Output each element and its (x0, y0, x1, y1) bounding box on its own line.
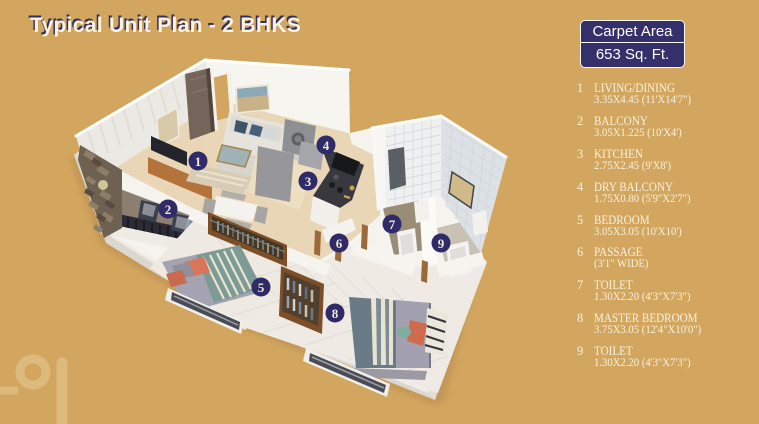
svg-text:5: 5 (258, 280, 265, 295)
svg-text:8: 8 (332, 306, 339, 321)
svg-text:3: 3 (305, 174, 312, 189)
svg-text:2: 2 (165, 202, 172, 217)
svg-text:4: 4 (323, 138, 330, 153)
svg-text:6: 6 (336, 236, 343, 251)
svg-text:9: 9 (438, 236, 445, 251)
svg-text:7: 7 (389, 217, 396, 232)
svg-text:1: 1 (195, 154, 202, 169)
